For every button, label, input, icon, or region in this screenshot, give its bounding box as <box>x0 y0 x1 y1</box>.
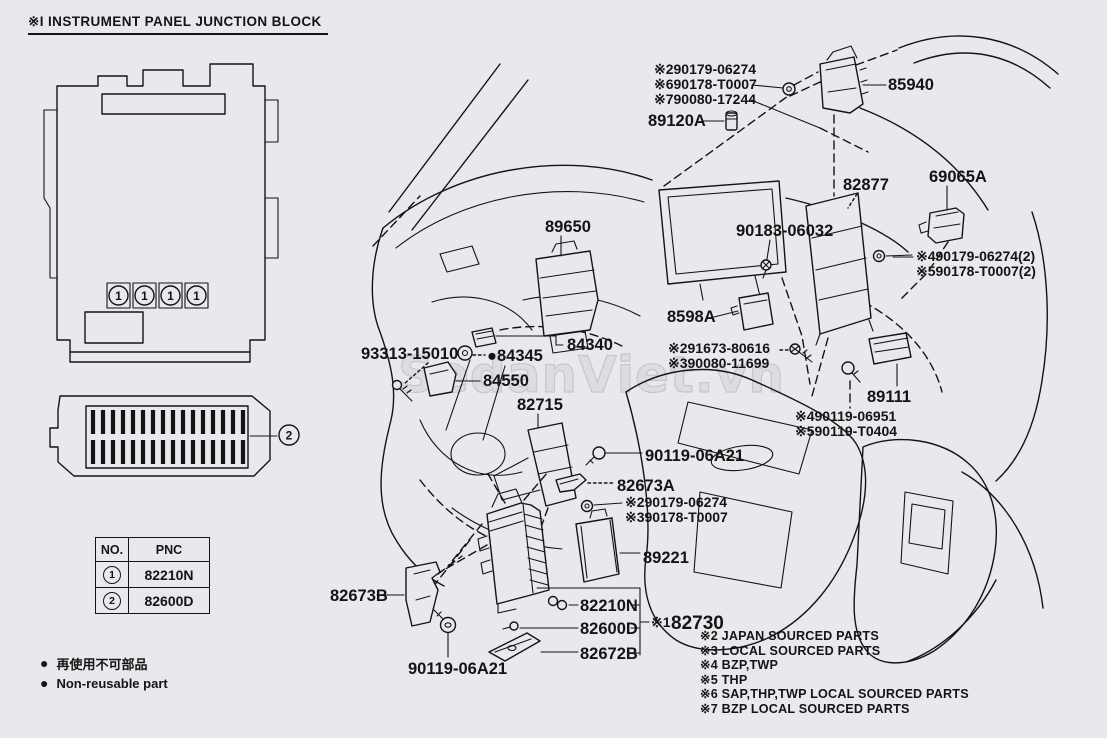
bullet-icon: ● <box>40 655 48 671</box>
part-90119-06A21-upper-drawing <box>586 447 642 465</box>
label-90119-06A21-lower: 90119-06A21 <box>408 660 507 678</box>
diagram-canvas: SedanViet.vn 1 1 1 1 <box>0 0 1107 738</box>
table-cell-no: 1 <box>96 562 129 588</box>
callout-1-icon: 1 <box>115 289 122 303</box>
callout-2-icon: 2 <box>286 429 293 443</box>
table-row: 1 82210N <box>96 562 210 588</box>
legend-item-en: ● Non-reusable part <box>40 673 168 693</box>
label-90178-T0007-mid: ※390178-T0007 <box>625 509 728 525</box>
junction-block-bottom-view: 2 <box>50 396 299 476</box>
junction-block-front-view: 1 1 1 1 <box>44 64 278 362</box>
part-grommet-top-drawing <box>752 72 818 95</box>
note-line: ※2 JAPAN SOURCED PARTS <box>700 629 969 644</box>
bullet-icon: ● <box>40 675 48 691</box>
note-line: ※4 BZP,TWP <box>700 658 969 673</box>
label-89221: 89221 <box>643 549 689 567</box>
label-90179-06274-top: ※290179-06274 <box>654 61 756 77</box>
note-line: ※3 LOCAL SOURCED PARTS <box>700 644 969 659</box>
label-82730-prefix: ※1 <box>651 614 671 630</box>
table-cell-pnc: 82600D <box>129 588 210 614</box>
legend-item-jp: ● 再使用不可部品 <box>40 653 168 673</box>
label-82673B: 82673B <box>330 587 388 605</box>
part-90119-06951-drawing <box>842 362 860 408</box>
label-84345: ●84345 <box>487 347 543 365</box>
label-69065A: 69065A <box>929 168 987 186</box>
notes-list: ※2 JAPAN SOURCED PARTS ※3 LOCAL SOURCED … <box>700 629 969 716</box>
label-90119-06951: ※490119-06951 <box>795 408 896 424</box>
part-89120A-drawing <box>702 111 737 130</box>
label-93313-15010: 93313-15010 <box>361 345 458 363</box>
part-90183-06032-drawing <box>761 240 771 278</box>
callout-2-icon: 2 <box>103 592 121 610</box>
label-90080-11699: ※390080-11699 <box>668 355 769 371</box>
callout-1-icon: 1 <box>141 289 148 303</box>
label-89111: 89111 <box>867 388 911 406</box>
label-90183-06032: 90183-06032 <box>736 222 833 240</box>
label-90178-T0007-right: ※590178-T0007(2) <box>916 263 1036 279</box>
label-90080-17244: ※790080-17244 <box>654 91 756 107</box>
pnc-table-header-no: NO. <box>96 538 129 562</box>
callout-1-icon: 1 <box>193 289 200 303</box>
pnc-table-header-pnc: PNC <box>129 538 210 562</box>
part-69065A-drawing <box>919 186 964 243</box>
part-90119-06A21-lower-drawing <box>433 609 456 657</box>
label-82673A: 82673A <box>617 477 675 495</box>
legend-text-jp: 再使用不可部品 <box>56 654 147 673</box>
callout-1-icon: 1 <box>167 289 174 303</box>
part-8598A-drawing <box>714 293 773 330</box>
label-84340: 84340 <box>567 336 613 354</box>
note-line: ※7 BZP LOCAL SOURCED PARTS <box>700 702 969 717</box>
legend-text-en: Non-reusable part <box>56 676 167 691</box>
pnc-table: NO. PNC 1 82210N 2 82600D <box>95 537 210 614</box>
part-89111-drawing <box>869 333 911 386</box>
label-91673-80616: ※291673-80616 <box>668 340 770 356</box>
label-82877: 82877 <box>843 176 889 194</box>
label-89120A: 89120A <box>648 112 706 130</box>
label-90119-06A21-upper: 90119-06A21 <box>645 447 744 465</box>
label-82210N: 82210N <box>580 597 638 615</box>
label-82672B: 82672B <box>580 645 638 663</box>
label-82600D: 82600D <box>580 620 638 638</box>
part-grommet-right-drawing <box>874 251 913 262</box>
callout-1-icon: 1 <box>103 566 121 584</box>
part-82730-junction-block-drawing <box>430 472 549 613</box>
table-cell-no: 2 <box>96 588 129 614</box>
label-84550: 84550 <box>483 372 529 390</box>
note-line: ※6 SAP,THP,TWP LOCAL SOURCED PARTS <box>700 687 969 702</box>
part-85940-drawing <box>820 46 886 196</box>
table-row: 2 82600D <box>96 588 210 614</box>
parts-diagram-page: ※I INSTRUMENT PANEL JUNCTION BLOCK Sedan… <box>0 0 1107 738</box>
label-8598A: 8598A <box>667 308 716 326</box>
part-82877-drawing <box>806 193 873 345</box>
label-89650: 89650 <box>545 218 591 236</box>
legend: ● 再使用不可部品 ● Non-reusable part <box>40 653 168 693</box>
label-90179-06274-right: ※490179-06274(2) <box>916 248 1035 264</box>
label-82715: 82715 <box>517 396 563 414</box>
label-85940: 85940 <box>888 76 934 94</box>
note-line: ※5 THP <box>700 673 969 688</box>
label-90178-T0007-top: ※690178-T0007 <box>654 76 757 92</box>
label-90179-06274-mid: ※290179-06274 <box>625 494 727 510</box>
label-90119-T0404: ※590119-T0404 <box>795 423 897 439</box>
table-cell-pnc: 82210N <box>129 562 210 588</box>
